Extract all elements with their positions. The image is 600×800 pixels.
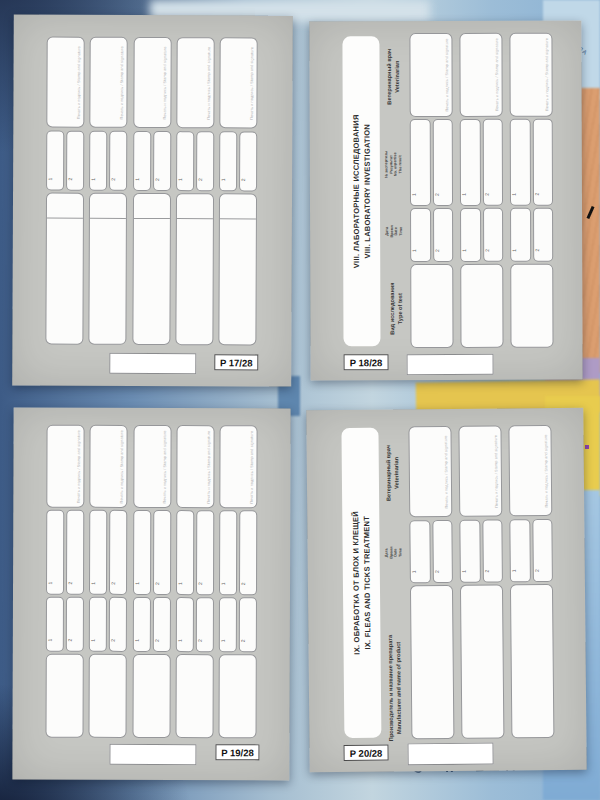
date-cell-pair: 1 2 — [176, 597, 214, 652]
result-cell-pair: 1 2 — [410, 119, 453, 206]
header-veterinarian-ru: Ветеринарный врач — [386, 48, 394, 104]
table-row: Печать и подпись / Stamp and signature 1… — [459, 33, 503, 348]
header-veterinarian-en: Veterinarian — [393, 444, 401, 500]
cell-1: 1 — [176, 510, 194, 595]
page-number-badge: P 17/28 — [214, 354, 258, 370]
cell-number: 2 — [68, 582, 73, 585]
product-cell — [510, 584, 554, 738]
result-cell-pair: 1 2 — [176, 510, 214, 595]
cell-1: 1 — [410, 208, 431, 262]
cell-1: 1 — [89, 597, 107, 652]
cell-number: 1 — [412, 570, 417, 573]
date-cell-pair: 1 2 — [89, 131, 127, 191]
table-row: Печать и подпись / Stamp and signature 1… — [509, 33, 553, 348]
table-row: Печать и подпись / Stamp and signature 1… — [458, 425, 504, 738]
entry-cell — [132, 654, 170, 738]
product-cell — [410, 585, 454, 739]
stamp-signature-cell: Печать и подпись / Stamp and signature — [409, 33, 452, 117]
entry-cell — [132, 193, 171, 345]
stamp-label-wrap: Печать и подпись / Stamp and signature — [204, 38, 213, 127]
cell-number: 2 — [241, 178, 246, 181]
cell-2: 2 — [196, 510, 214, 595]
stamp-label: Печать и подпись / Stamp and signature — [77, 430, 81, 503]
entry-cell — [89, 193, 128, 345]
cell-number: 2 — [198, 582, 203, 585]
cell-number: 2 — [241, 639, 246, 642]
section-title: VIII. ЛАБОРАТОРНЫЕ ИССЛЕДОВАНИЯ VIII. LA… — [350, 114, 373, 268]
cell-number: 2 — [534, 569, 539, 572]
table-column: Печать и подпись / Stamp and signature 1… — [175, 37, 214, 345]
cell-1: 1 — [133, 131, 151, 191]
stamp-signature-cell: Печать и подпись / Stamp and signature — [46, 37, 84, 128]
product-cell — [460, 584, 504, 738]
stamp-label-wrap: Печать и подпись / Stamp and signature — [491, 426, 501, 515]
cell-number: 2 — [197, 639, 202, 642]
stamp-label: Печать и подпись / Stamp and signature — [444, 435, 449, 508]
stamp-label: Печать и подпись / Stamp and signature — [544, 434, 549, 507]
cell-number: 1 — [48, 582, 53, 585]
blank-field — [407, 354, 494, 375]
cell-1: 1 — [46, 597, 64, 652]
stamp-label-wrap: Печать и подпись / Stamp and signature — [542, 34, 551, 116]
cell-number: 1 — [412, 193, 417, 196]
stamp-label: Печать и подпись / Stamp and signature — [120, 46, 124, 119]
blank-field — [407, 743, 493, 766]
header-date-ru2: Время — [389, 225, 394, 237]
date-cell-pair: 1 2 — [46, 597, 84, 652]
cell-number: 2 — [154, 639, 159, 642]
result-cell-pair: 1 2 — [460, 119, 503, 206]
stamp-label-wrap: Печать и подпись / Stamp and signature — [118, 38, 127, 127]
cell-number: 1 — [462, 570, 467, 573]
entry-cell — [45, 654, 83, 738]
photo-collage: ОКЕАН ЛА Печать и подпись / Stamp and si… — [0, 0, 600, 800]
cell-2: 2 — [153, 131, 171, 191]
header-veterinarian: Ветеринарный врач Veterinarian — [382, 442, 405, 502]
cell-2: 2 — [533, 208, 554, 262]
cell-2: 2 — [66, 510, 84, 595]
header-date-en1: Date — [394, 225, 399, 237]
cell-number: 1 — [512, 193, 517, 196]
date-cell-pair: 1 2 — [89, 597, 127, 652]
cell-number: 2 — [241, 582, 246, 585]
stamp-label-wrap: Печать и подпись / Stamp and signature — [492, 34, 501, 116]
table-row: Печать и подпись / Stamp and signature 1… — [508, 425, 554, 738]
cell-1: 1 — [132, 597, 150, 652]
cell-number: 2 — [154, 178, 159, 181]
cell-number: 1 — [134, 639, 139, 642]
cell-1: 1 — [132, 510, 150, 595]
cell-1: 1 — [46, 131, 64, 191]
cell-1: 1 — [219, 510, 237, 595]
stamp-signature-cell: Печать и подпись / Stamp and signature — [219, 37, 257, 128]
stamp-label: Печать и подпись / Stamp and signature — [77, 46, 81, 119]
passport-page-18: VIII. ЛАБОРАТОРНЫЕ ИССЛЕДОВАНИЯ VIII. LA… — [309, 21, 582, 381]
cell-2: 2 — [239, 510, 257, 595]
stamp-label: Печать и подпись / Stamp and signature — [163, 430, 167, 503]
cell-2: 2 — [109, 597, 127, 652]
cell-number: 1 — [48, 178, 53, 181]
header-type-of-test: Вид исследования Type of test — [385, 278, 407, 338]
cell-1: 1 — [510, 208, 531, 262]
section-title-box: IX. ОБРАБОТКА ОТ БЛОХ И КЛЕЩЕЙ IX. FLEAS… — [341, 428, 381, 738]
section-title-ru: VIII. ЛАБОРАТОРНЫЕ ИССЛЕДОВАНИЯ — [350, 114, 362, 268]
cell-divider — [90, 218, 126, 219]
cell-1: 1 — [176, 131, 194, 191]
date-cell-pair: 1 2 — [219, 131, 257, 191]
stamp-signature-cell: Печать и подпись / Stamp and signature — [90, 37, 128, 128]
date-cell-pair: 1 2 — [509, 519, 553, 582]
stamp-label: Печать и подпись / Stamp and signature — [207, 46, 211, 119]
passport-page-20: IX. ОБРАБОТКА ОТ БЛОХ И КЛЕЩЕЙ IX. FLEAS… — [306, 408, 586, 773]
cell-2: 2 — [152, 597, 170, 652]
page-number-badge: P 18/28 — [344, 354, 389, 370]
stamp-label-wrap: Печать и подпись / Stamp and signature — [541, 426, 551, 515]
cell-2: 2 — [433, 208, 454, 262]
stamp-label: Печать и подпись / Stamp and signature — [494, 434, 499, 507]
cell-number: 2 — [485, 249, 490, 252]
cell-1: 1 — [89, 510, 107, 595]
result-cell-pair: 1 2 — [510, 119, 553, 206]
date-cell-pair: 1 2 — [460, 208, 503, 262]
cell-number: 2 — [198, 178, 203, 181]
blank-field — [109, 744, 196, 765]
cell-2: 2 — [483, 208, 504, 262]
cell-number: 2 — [111, 178, 116, 181]
cell-2: 2 — [109, 131, 127, 191]
page-number-badge: P 19/28 — [215, 744, 259, 760]
cell-1: 1 — [409, 520, 430, 583]
header-product-ru: Производитель и название препарата — [387, 634, 396, 740]
type-of-test-cell — [410, 264, 453, 348]
cell-number: 2 — [434, 193, 439, 196]
header-date-ru1: Дата — [385, 225, 390, 237]
stamp-signature-cell: Печать и подпись / Stamp and signature — [458, 425, 502, 516]
cell-2: 2 — [152, 510, 170, 595]
cell-number: 2 — [534, 193, 539, 196]
table-column: Печать и подпись / Stamp and signature 1… — [89, 37, 128, 345]
date-cell-pair: 1 2 — [410, 208, 453, 262]
cell-divider — [177, 218, 213, 219]
cell-number: 2 — [484, 570, 489, 573]
table-row: Печать и подпись / Stamp and signature 1… — [409, 33, 453, 348]
stamp-signature-cell: Печать и подпись / Stamp and signature — [176, 425, 214, 508]
cell-number: 1 — [177, 639, 182, 642]
cell-2: 2 — [196, 131, 214, 191]
cell-1: 1 — [510, 119, 531, 206]
cell-1: 1 — [410, 119, 431, 206]
cell-2: 2 — [532, 519, 553, 582]
table-column: Печать и подпись / Stamp and signature 1… — [132, 425, 171, 738]
cell-number: 1 — [462, 249, 467, 252]
stamp-label-wrap: Печать и подпись / Stamp and signature — [247, 38, 256, 127]
cell-2: 2 — [432, 119, 453, 206]
cell-number: 1 — [462, 193, 467, 196]
table-column: Печать и подпись / Stamp and signature 1… — [45, 425, 84, 738]
cell-1: 1 — [219, 131, 237, 191]
stamp-label: Печать и подпись / Stamp and signature — [545, 38, 549, 111]
date-cell-pair: 1 2 — [409, 520, 453, 583]
cell-number: 2 — [435, 249, 440, 252]
section-title: IX. ОБРАБОТКА ОТ БЛОХ И КЛЕЩЕЙ IX. FLEAS… — [350, 511, 373, 655]
stamp-label: Печать и подпись / Stamp and signature — [163, 46, 167, 119]
cell-2: 2 — [66, 597, 84, 652]
table-column: Печать и подпись / Stamp and signature 1… — [89, 425, 128, 738]
table-column: Печать и подпись / Stamp and signature 1… — [132, 37, 171, 345]
stamp-signature-cell: Печать и подпись / Stamp and signature — [219, 425, 257, 508]
header-result-en1: No. expertise — [394, 150, 399, 177]
section-title-en: IX. FLEAS AND TICKS TREATMENT — [361, 511, 373, 655]
date-cell-pair: 1 2 — [459, 519, 503, 582]
header-date: Дата Время Date Time — [382, 532, 404, 572]
header-veterinarian-ru: Ветеринарный врач — [385, 445, 393, 501]
header-test-en: Type of test — [396, 282, 404, 334]
table-column: Печать и подпись / Stamp and signature 1… — [175, 425, 214, 738]
stamp-label: Печать и подпись / Stamp and signature — [250, 430, 254, 503]
result-cell-pair: 1 2 — [46, 510, 84, 595]
cell-1: 1 — [219, 597, 237, 652]
header-date-en2: Time — [398, 546, 403, 558]
cell-number: 2 — [535, 249, 540, 252]
cell-number: 1 — [48, 639, 53, 642]
stamp-signature-cell: Печать и подпись / Stamp and signature — [508, 425, 552, 516]
result-cell-pair: 1 2 — [132, 510, 170, 595]
cell-number: 2 — [68, 178, 73, 181]
stamp-label: Печать и подпись / Stamp and signature — [445, 38, 449, 111]
table-column: Печать и подпись / Stamp and signature 1… — [218, 37, 257, 345]
date-cell-pair: 1 2 — [133, 131, 171, 191]
result-cell-pair: 1 2 — [219, 510, 257, 595]
stamp-signature-cell: Печать и подпись / Stamp and signature — [176, 37, 214, 128]
table-rows: Печать и подпись / Stamp and signature 1… — [409, 33, 553, 348]
cell-1: 1 — [460, 208, 481, 262]
header-veterinarian-en: Veterinarian — [393, 48, 401, 104]
stamp-label-wrap: Печать и подпись / Stamp and signature — [74, 426, 83, 507]
stamp-label-wrap: Печать и подпись / Stamp and signature — [441, 427, 451, 516]
cell-2: 2 — [482, 119, 503, 206]
stamp-label-wrap: Печать и подпись / Stamp and signature — [247, 426, 256, 507]
cell-number: 1 — [221, 639, 226, 642]
section-title-box: VIII. ЛАБОРАТОРНЫЕ ИССЛЕДОВАНИЯ VIII. LA… — [342, 36, 380, 346]
stamp-label-wrap: Печать и подпись / Stamp and signature — [161, 38, 170, 127]
result-cell-pair: 1 2 — [89, 510, 127, 595]
cell-number: 2 — [111, 639, 116, 642]
cell-2: 2 — [109, 510, 127, 595]
passport-page-19: Печать и подпись / Stamp and signature 1… — [12, 408, 290, 781]
stamp-label-wrap: Печать и подпись / Stamp and signature — [204, 426, 213, 507]
header-result-ru1: № экспертизы — [385, 151, 390, 178]
cell-number: 1 — [178, 178, 183, 181]
cell-2: 2 — [66, 131, 84, 191]
date-cell-pair: 1 2 — [46, 131, 84, 191]
cell-number: 1 — [412, 249, 417, 252]
cell-1: 1 — [509, 519, 530, 582]
blank-field — [109, 353, 196, 374]
cell-number: 1 — [91, 639, 96, 642]
entry-cell — [218, 193, 257, 345]
table-columns: Печать и подпись / Stamp and signature 1… — [45, 37, 257, 346]
entry-cell — [175, 193, 214, 345]
cell-number: 1 — [512, 249, 517, 252]
header-result: № экспертизы Результат No. expertise The… — [383, 134, 405, 194]
stamp-label: Печать и подпись / Stamp and signature — [207, 430, 211, 503]
table-rows: Печать и подпись / Stamp and signature 1… — [408, 425, 554, 739]
section-title-en: VIII. LABORATORY INVESTIGATION — [361, 114, 373, 268]
cell-divider — [220, 218, 256, 219]
date-cell-pair: 1 2 — [219, 597, 257, 652]
cell-1: 1 — [46, 510, 64, 595]
cell-number: 1 — [134, 582, 139, 585]
cell-number: 2 — [434, 570, 439, 573]
stamp-label: Печать и подпись / Stamp and signature — [120, 430, 124, 503]
type-of-test-cell — [510, 264, 553, 348]
table-column: Печать и подпись / Stamp and signature 1… — [218, 425, 257, 738]
cell-1: 1 — [89, 131, 107, 191]
stamp-label-wrap: Печать и подпись / Stamp and signature — [442, 34, 451, 116]
stamp-label: Печать и подпись / Stamp and signature — [250, 46, 254, 119]
header-veterinarian: Ветеринарный врач Veterinarian — [382, 36, 404, 116]
header-date-ru2: Время — [389, 546, 394, 558]
header-result-ru2: Результат — [389, 151, 394, 178]
cell-1: 1 — [459, 520, 480, 583]
stamp-signature-cell: Печать и подпись / Stamp and signature — [509, 33, 552, 117]
passport-page-17: Печать и подпись / Stamp and signature 1… — [12, 14, 293, 386]
stamp-label-wrap: Печать и подпись / Stamp and signature — [118, 426, 127, 507]
header-date-en2: Time — [399, 225, 404, 237]
table-row: Печать и подпись / Stamp and signature 1… — [408, 426, 454, 739]
header-date-ru1: Дата — [384, 546, 389, 558]
entry-cell — [45, 193, 84, 345]
page-number-badge: P 20/28 — [343, 745, 388, 761]
stamp-signature-cell: Печать и подпись / Stamp and signature — [459, 33, 502, 117]
stamp-signature-cell: Печать и подпись / Stamp and signature — [133, 37, 171, 128]
cell-number: 2 — [68, 639, 73, 642]
stamp-signature-cell: Печать и подпись / Stamp and signature — [408, 426, 452, 517]
header-result-en2: The result — [398, 150, 403, 177]
header-date: Дата Время Date Time — [383, 211, 405, 251]
cell-divider — [47, 218, 83, 219]
cell-1: 1 — [460, 119, 481, 206]
entry-cell — [175, 654, 213, 738]
stamp-signature-cell: Печать и подпись / Stamp and signature — [133, 425, 171, 508]
cell-1: 1 — [176, 597, 194, 652]
cell-number: 1 — [91, 178, 96, 181]
stamp-label: Печать и подпись / Stamp and signature — [495, 38, 499, 111]
header-date-en1: Date — [394, 546, 399, 558]
entry-cell — [218, 654, 256, 738]
stamp-label-wrap: Печать и подпись / Stamp and signature — [74, 38, 83, 127]
date-cell-pair: 1 2 — [132, 597, 170, 652]
stamp-signature-cell: Печать и подпись / Stamp and signature — [46, 425, 84, 508]
cell-number: 1 — [178, 582, 183, 585]
cell-2: 2 — [239, 597, 257, 652]
cell-number: 1 — [221, 178, 226, 181]
cell-number: 1 — [512, 569, 517, 572]
stamp-label-wrap: Печать и подпись / Stamp and signature — [161, 426, 170, 507]
cell-number: 1 — [134, 178, 139, 181]
cell-2: 2 — [239, 131, 257, 191]
cell-2: 2 — [482, 519, 503, 582]
cell-2: 2 — [432, 520, 453, 583]
header-product: Производитель и название препарата Manuf… — [383, 637, 406, 737]
table-columns: Печать и подпись / Stamp and signature 1… — [45, 425, 257, 739]
date-cell-pair: 1 2 — [510, 208, 553, 262]
cell-number: 2 — [111, 582, 116, 585]
cell-2: 2 — [196, 597, 214, 652]
cell-number: 1 — [91, 582, 96, 585]
header-test-ru: Вид исследования — [389, 282, 397, 334]
cell-number: 1 — [221, 582, 226, 585]
cell-number: 2 — [154, 582, 159, 585]
stamp-signature-cell: Печать и подпись / Stamp and signature — [90, 425, 128, 508]
cell-number: 2 — [484, 193, 489, 196]
cell-divider — [133, 218, 169, 219]
type-of-test-cell — [460, 264, 503, 348]
cell-2: 2 — [532, 119, 553, 206]
table-column: Печать и подпись / Stamp and signature 1… — [45, 37, 84, 345]
date-cell-pair: 1 2 — [176, 131, 214, 191]
map-symbol — [585, 445, 589, 449]
header-product-en: Manufacturer and name of product — [394, 634, 403, 740]
entry-cell — [89, 654, 127, 738]
